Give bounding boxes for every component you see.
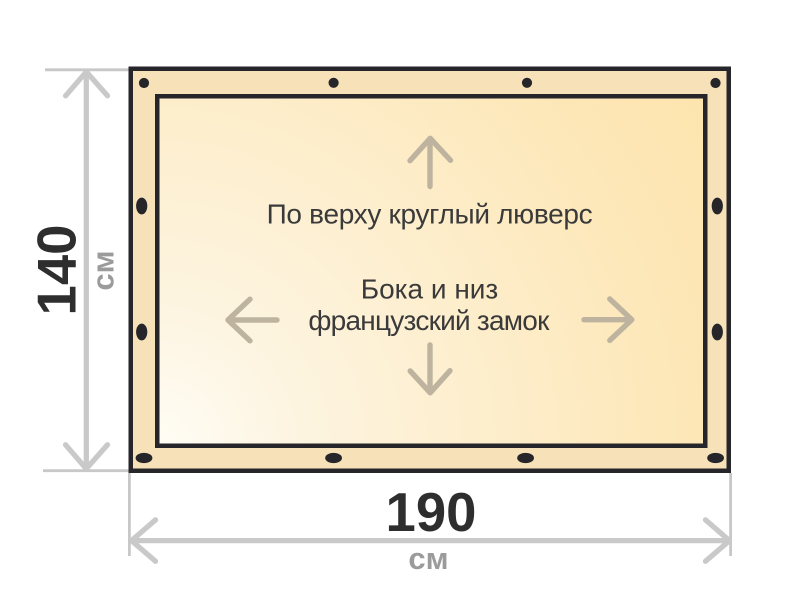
svg-text:французский замок: французский замок (308, 305, 550, 336)
svg-text:см: см (408, 541, 448, 576)
svg-text:см: см (86, 250, 121, 290)
svg-text:Бока и низ: Бока и низ (361, 273, 499, 304)
svg-text:140: 140 (26, 225, 87, 316)
svg-text:По верху круглый люверс: По верху круглый люверс (267, 199, 593, 230)
svg-text:190: 190 (386, 482, 477, 543)
